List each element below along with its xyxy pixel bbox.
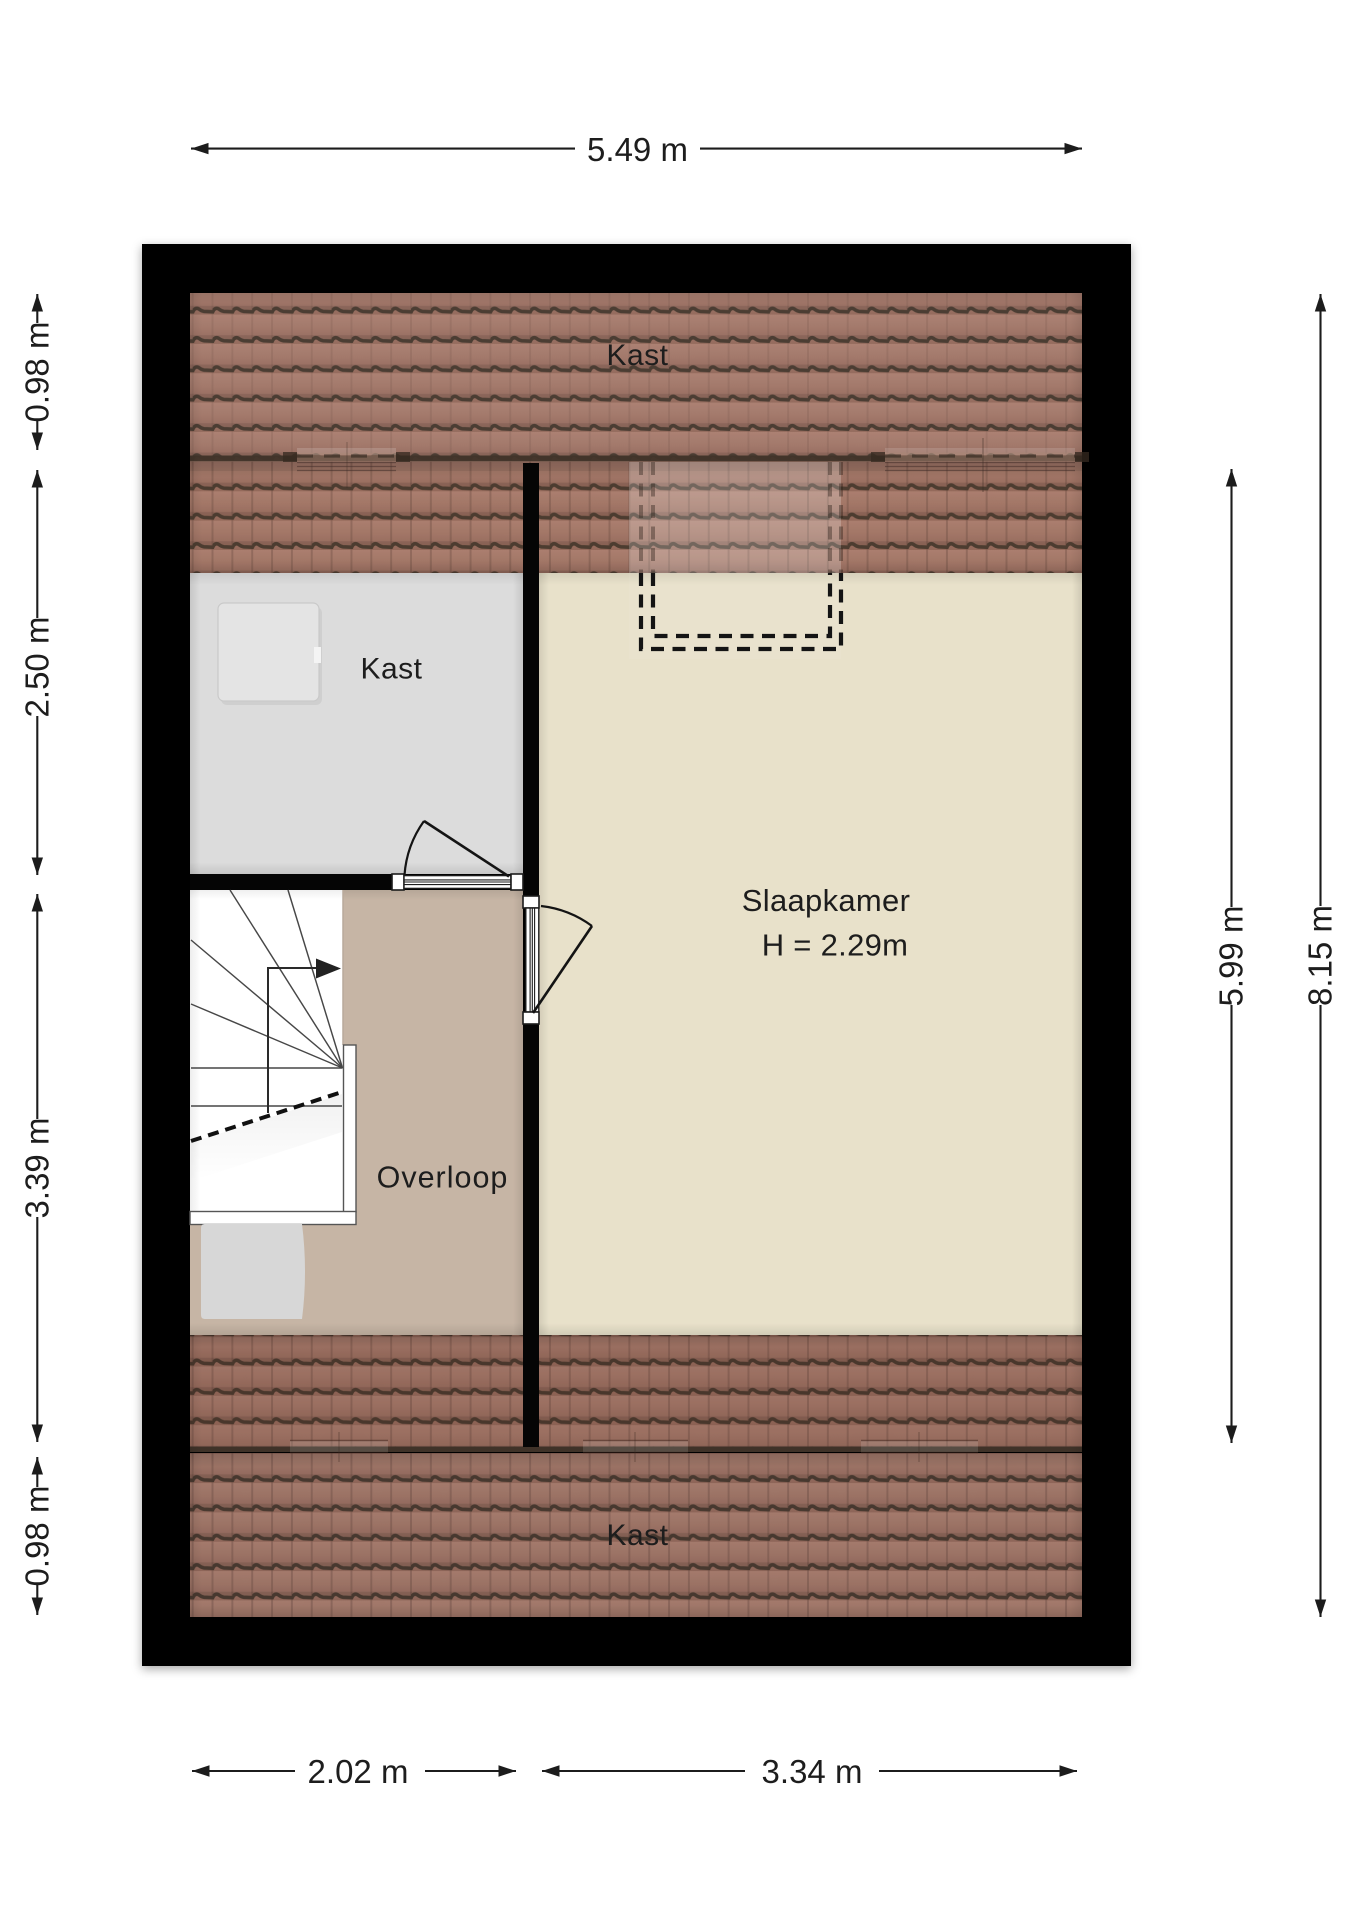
svg-text:H = 2.29m: H = 2.29m bbox=[762, 928, 909, 963]
svg-text:5.99 m: 5.99 m bbox=[1213, 906, 1250, 1007]
svg-text:3.39 m: 3.39 m bbox=[19, 1118, 56, 1219]
svg-text:0.98 m: 0.98 m bbox=[19, 322, 56, 423]
svg-text:Kast: Kast bbox=[606, 339, 668, 372]
svg-text:2.02 m: 2.02 m bbox=[308, 1753, 409, 1790]
svg-text:5.49 m: 5.49 m bbox=[587, 131, 688, 168]
svg-text:2.50 m: 2.50 m bbox=[19, 617, 56, 718]
svg-text:Overloop: Overloop bbox=[377, 1161, 509, 1195]
svg-text:8.15 m: 8.15 m bbox=[1302, 905, 1339, 1006]
svg-text:3.34 m: 3.34 m bbox=[762, 1753, 863, 1790]
svg-text:Kast: Kast bbox=[360, 653, 422, 686]
svg-text:0.98 m: 0.98 m bbox=[19, 1486, 56, 1587]
svg-text:Slaapkamer: Slaapkamer bbox=[742, 883, 910, 918]
svg-text:Kast: Kast bbox=[606, 1519, 668, 1552]
